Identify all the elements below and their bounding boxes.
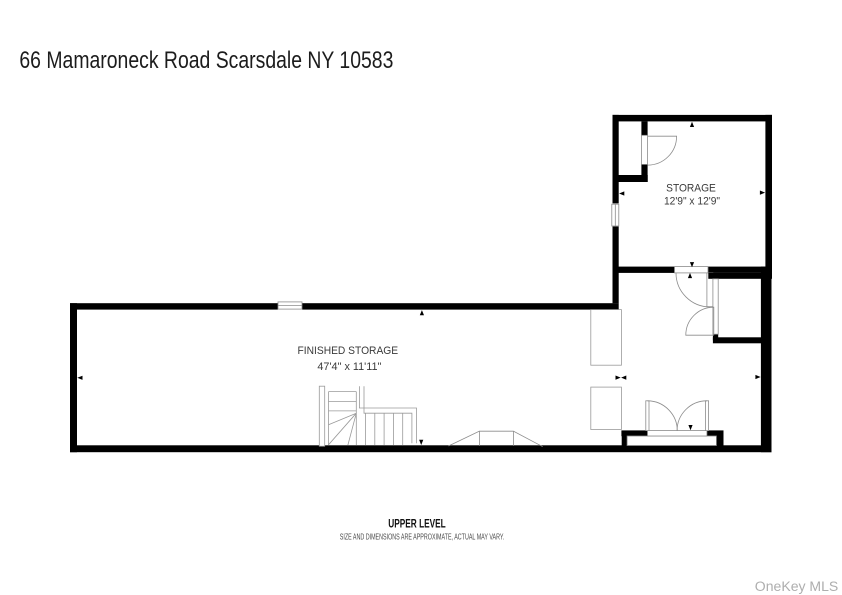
svg-text:STORAGE: STORAGE	[666, 183, 716, 195]
svg-text:12'9" x 12'9": 12'9" x 12'9"	[664, 196, 720, 208]
svg-text:UPPER LEVEL: UPPER LEVEL	[388, 516, 446, 530]
svg-text:FINISHED STORAGE: FINISHED STORAGE	[298, 345, 399, 357]
svg-text:OneKey MLS: OneKey MLS	[755, 579, 839, 594]
svg-text:47'4" x 11'11": 47'4" x 11'11"	[317, 361, 381, 373]
svg-text:SIZE AND DIMENSIONS ARE APPROX: SIZE AND DIMENSIONS ARE APPROXIMATE, ACT…	[340, 533, 505, 542]
svg-text:66 Mamaroneck Road Scarsdale N: 66 Mamaroneck Road Scarsdale NY 10583	[19, 47, 393, 74]
